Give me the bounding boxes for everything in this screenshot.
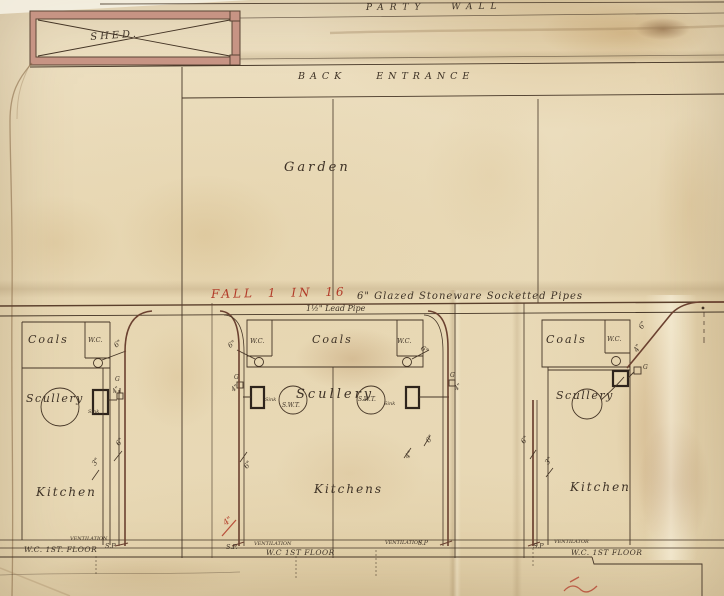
kitchen-label-left: Kitchen (36, 486, 97, 498)
back-entrance-label: BACK ENTRANCE (298, 72, 474, 82)
coals-label-middle: Coals (312, 334, 353, 345)
scullery-label-left: Scullery (26, 393, 84, 404)
wc-label-left: W.C. (88, 337, 102, 344)
soil-pipe-label-left: S.P (105, 543, 116, 550)
paper-left-edge (10, 63, 32, 596)
gully-label-right: G (643, 365, 648, 371)
sink-label-middle-left: Sink (265, 398, 276, 403)
soil-pipe-label-middle-right: S.P (418, 541, 428, 547)
garden-label: Garden (284, 161, 351, 174)
gully-label-middle-left: G (234, 375, 239, 381)
gully-label-middle-right: G (450, 373, 455, 379)
scullery-label-right: Scullery (556, 390, 614, 401)
red-scribble-note (564, 577, 597, 592)
soil-pipe-label-middle: S.P. (226, 544, 237, 551)
fall-note-label: FALL 1 IN 16 (211, 286, 347, 300)
ventilator-label-right: VENTILATOR (554, 540, 589, 545)
swt-label-middle-left: S.W.T. (282, 403, 300, 409)
sink-label-left: Sink (88, 410, 99, 415)
kitchen-label-right: Kitchen (570, 481, 631, 493)
pipe-spec-label: 6" Glazed Stoneware Socketted Pipes (357, 292, 583, 302)
kitchens-label-middle: Kitchens (314, 483, 383, 495)
wc-label-middle-left: W.C. (250, 338, 264, 345)
swt-label-middle-right: S.W.T. (358, 397, 376, 403)
wc-first-floor-label-left: W.C. 1ST. FLOOR (24, 546, 97, 554)
wc-label-right: W.C. (607, 336, 621, 343)
ventilation-label-left: VENTILATION (70, 537, 107, 542)
ventilation-label-middle: VENTILATION (254, 542, 291, 547)
coals-label-right: Coals (546, 334, 587, 345)
wc-label-middle-right: W.C. (397, 338, 411, 345)
drainage-plan-sheet: PARTY WALL SHED. BACK ENTRANCE Garden FA… (0, 0, 724, 596)
wc-first-floor-label-right: W.C. 1ST FLOOR (571, 549, 642, 557)
ventilation-label-middle-right: VENTILATION (385, 541, 422, 546)
soil-pipe-label-right: S.P (533, 543, 544, 550)
sink-label-middle-right: Sink (384, 402, 395, 407)
coals-label-left: Coals (28, 334, 69, 345)
lead-pipe-label: 1½" Lead Pipe (306, 305, 365, 313)
gully-label-left: G (115, 377, 120, 383)
party-wall-label: PARTY WALL (366, 3, 502, 13)
wc-first-floor-label-middle: W.C 1ST FLOOR (266, 549, 335, 557)
